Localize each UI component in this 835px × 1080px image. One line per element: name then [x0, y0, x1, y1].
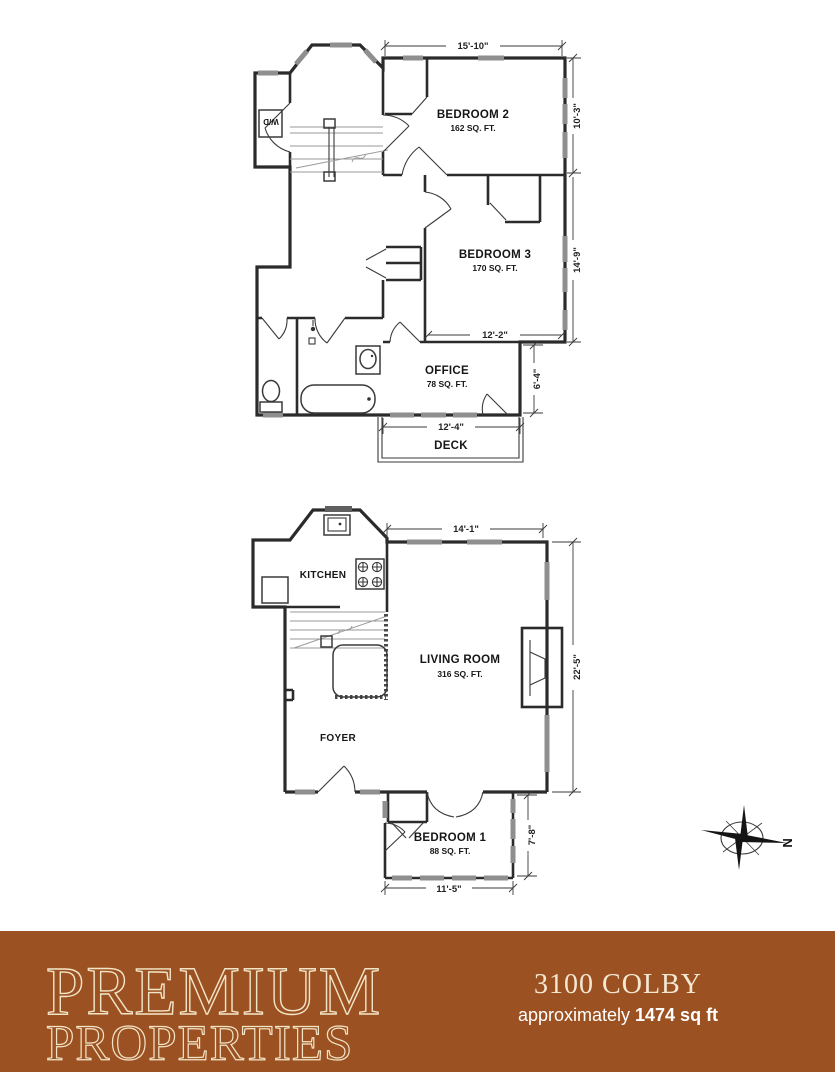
- laundry-label: W/D: [263, 117, 279, 126]
- office-label: OFFICE: [425, 365, 469, 377]
- upper-dimensions: 15'-10" 10'-3" 14'-9" 12'-2" 6'-4" 12'-4…: [379, 40, 583, 434]
- dim-office-width: 12'-4": [438, 422, 464, 433]
- bedroom2-label: BEDROOM 2: [437, 109, 509, 121]
- floorplan-flyer: { "upper": { "bedroom2_name": "BEDROOM 2…: [0, 0, 835, 1080]
- kitchen-fixtures: [262, 515, 384, 603]
- dim-main-top: 14'-1": [453, 524, 479, 535]
- stove: [356, 559, 384, 589]
- upper-stairs: [290, 119, 388, 181]
- address-block: 3100 COLBY approximately 1474 sq ft: [492, 969, 744, 1026]
- dim-bedroom1-height: 7'-8": [527, 825, 538, 846]
- dim-living-height: 22'-5": [572, 654, 583, 680]
- floor-plan-canvas: 15'-10" 10'-3" 14'-9" 12'-2" 6'-4" 12'-4…: [0, 0, 835, 931]
- foyer-label: FOYER: [320, 733, 356, 744]
- bedroom3-label: BEDROOM 3: [459, 249, 531, 261]
- area-prefix: approximately: [518, 1005, 630, 1025]
- property-area: approximately 1474 sq ft: [492, 1005, 744, 1026]
- property-address: 3100 COLBY: [492, 969, 744, 1001]
- main-stairs: [290, 612, 387, 700]
- upper-outer-walls: [255, 45, 565, 415]
- bedroom2-area: 162 SQ. FT.: [450, 123, 495, 133]
- footer-banner: PREMIUM PROPERTIES 3100 COLBY approximat…: [0, 931, 835, 1072]
- dim-upper-top: 15'-10": [457, 41, 488, 52]
- brand-logo: PREMIUM PROPERTIES: [44, 933, 464, 1073]
- bedroom1-label: BEDROOM 1: [414, 832, 487, 844]
- bathroom-fixtures: [260, 320, 380, 413]
- area-value: 1474 sq ft: [635, 1005, 718, 1025]
- fireplace: [522, 628, 562, 707]
- main-floor-plan: 14'-1" 22'-5" 7'-8" 11'-5" KITCHEN LIVIN…: [253, 509, 583, 895]
- dim-bedroom1-width: 11'-5": [436, 884, 461, 895]
- living-room-label: LIVING ROOM: [420, 654, 501, 666]
- refrigerator: [262, 577, 288, 603]
- compass-icon: N: [701, 805, 795, 870]
- bedroom3-area: 170 SQ. FT.: [472, 263, 517, 273]
- dim-office-height: 6'-4": [532, 369, 543, 390]
- dim-bedroom3-width: 12'-2": [482, 330, 508, 341]
- brand-line2: PROPERTIES: [46, 1016, 353, 1072]
- deck-label: DECK: [434, 440, 468, 452]
- sofa: [333, 645, 387, 697]
- upper-floor-plan: 15'-10" 10'-3" 14'-9" 12'-2" 6'-4" 12'-4…: [255, 40, 583, 462]
- kitchen-label: KITCHEN: [300, 570, 347, 581]
- north-label: N: [780, 838, 795, 847]
- main-outer-walls: [253, 510, 547, 792]
- dim-bedroom3-height: 14'-9": [572, 247, 583, 273]
- bedroom1-area: 88 SQ. FT.: [430, 846, 471, 856]
- office-area: 78 SQ. FT.: [427, 379, 468, 389]
- living-room-area: 316 SQ. FT.: [437, 669, 482, 679]
- dim-bedroom2-height: 10'-3": [572, 103, 583, 129]
